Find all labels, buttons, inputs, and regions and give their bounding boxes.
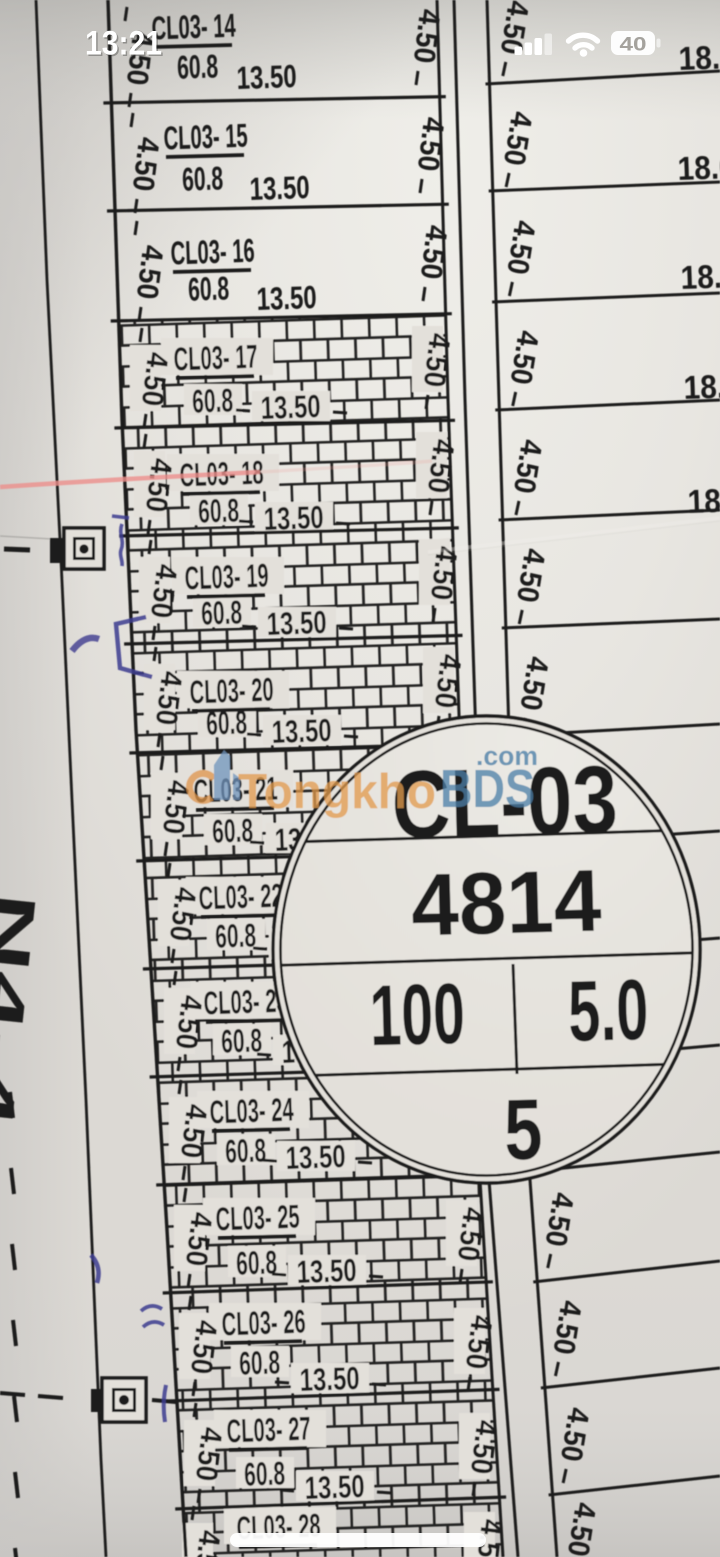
svg-text:4.50: 4.50 [144, 562, 183, 620]
svg-text:CL03- 17: CL03- 17 [173, 338, 258, 378]
svg-text:13.50: 13.50 [236, 58, 297, 96]
svg-text:13.50: 13.50 [285, 1138, 346, 1176]
svg-text:60.8: 60.8 [205, 703, 247, 741]
svg-text:18.0: 18.0 [680, 257, 720, 296]
svg-text:13.50: 13.50 [249, 169, 310, 207]
svg-text:4.50: 4.50 [139, 456, 178, 514]
svg-text:60.8: 60.8 [238, 1343, 280, 1381]
svg-text:13.50: 13.50 [271, 712, 332, 750]
svg-text:13.50: 13.50 [304, 1468, 365, 1506]
svg-text:100: 100 [369, 966, 466, 1064]
svg-text:60.8: 60.8 [224, 1131, 266, 1169]
svg-text:4814: 4814 [410, 851, 603, 955]
svg-text:4.50: 4.50 [163, 885, 202, 943]
svg-text:60.8: 60.8 [176, 47, 218, 85]
svg-text:CL03- 24: CL03- 24 [209, 1091, 295, 1131]
svg-text:60.8: 60.8 [191, 381, 233, 419]
svg-text:4.50: 4.50 [126, 135, 165, 193]
svg-text:4.50: 4.50 [135, 350, 174, 408]
svg-text:18.0: 18.0 [683, 367, 720, 406]
svg-text:CL03- 27: CL03- 27 [226, 1410, 311, 1450]
svg-text:4.50: 4.50 [411, 115, 450, 173]
svg-text:5: 5 [503, 1082, 543, 1179]
svg-text:60.8: 60.8 [181, 159, 223, 197]
svg-text:CL03- 15: CL03- 15 [163, 117, 248, 157]
svg-text:60.8: 60.8 [220, 1021, 262, 1059]
svg-text:18.0: 18.0 [687, 481, 720, 520]
svg-text:13.50: 13.50 [266, 604, 327, 642]
svg-text:4.50: 4.50 [407, 7, 446, 65]
svg-text:CL03- 26: CL03- 26 [221, 1303, 306, 1343]
svg-text:5.0: 5.0 [567, 962, 649, 1060]
svg-text:18.0: 18.0 [677, 148, 720, 187]
svg-text:Tongkho: Tongkho [238, 765, 436, 819]
svg-text:13.50: 13.50 [299, 1360, 360, 1398]
svg-text:60.8: 60.8 [197, 491, 239, 529]
svg-text:CL03- 19: CL03- 19 [184, 557, 269, 597]
svg-text:4.50: 4.50 [417, 331, 456, 389]
svg-text:4.50: 4.50 [174, 1102, 213, 1160]
svg-text:18.0: 18.0 [678, 38, 720, 77]
svg-text:4.50: 4.50 [169, 993, 208, 1051]
svg-text:CL03- 14: CL03- 14 [151, 7, 237, 47]
svg-text:CL03- 22: CL03- 22 [198, 877, 283, 917]
svg-text:60.8: 60.8 [235, 1243, 277, 1281]
svg-text:60.8: 60.8 [187, 269, 229, 307]
svg-text:40: 40 [620, 35, 647, 56]
svg-text:4.50: 4.50 [184, 1318, 223, 1376]
svg-text:60.8: 60.8 [214, 916, 256, 954]
svg-text:.com: .com [476, 741, 538, 771]
svg-text:60.8: 60.8 [200, 593, 242, 631]
svg-text:4.50: 4.50 [149, 669, 188, 727]
svg-text:4.50: 4.50 [130, 243, 169, 301]
svg-text:4.50: 4.50 [179, 1210, 218, 1268]
svg-text:CL03- 25: CL03- 25 [215, 1198, 300, 1238]
svg-text:4.50: 4.50 [428, 652, 467, 710]
svg-text:60.8: 60.8 [243, 1454, 285, 1492]
svg-text:4.50: 4.50 [414, 223, 453, 281]
svg-text:13:21: 13:21 [85, 25, 162, 63]
svg-text:13.50: 13.50 [296, 1252, 357, 1290]
svg-text:13.50: 13.50 [256, 279, 317, 317]
svg-text:4.50: 4.50 [189, 1425, 228, 1483]
svg-text:CL03- 16: CL03- 16 [170, 232, 255, 272]
svg-text:13.50: 13.50 [260, 388, 321, 426]
svg-text:4.50: 4.50 [421, 437, 460, 495]
